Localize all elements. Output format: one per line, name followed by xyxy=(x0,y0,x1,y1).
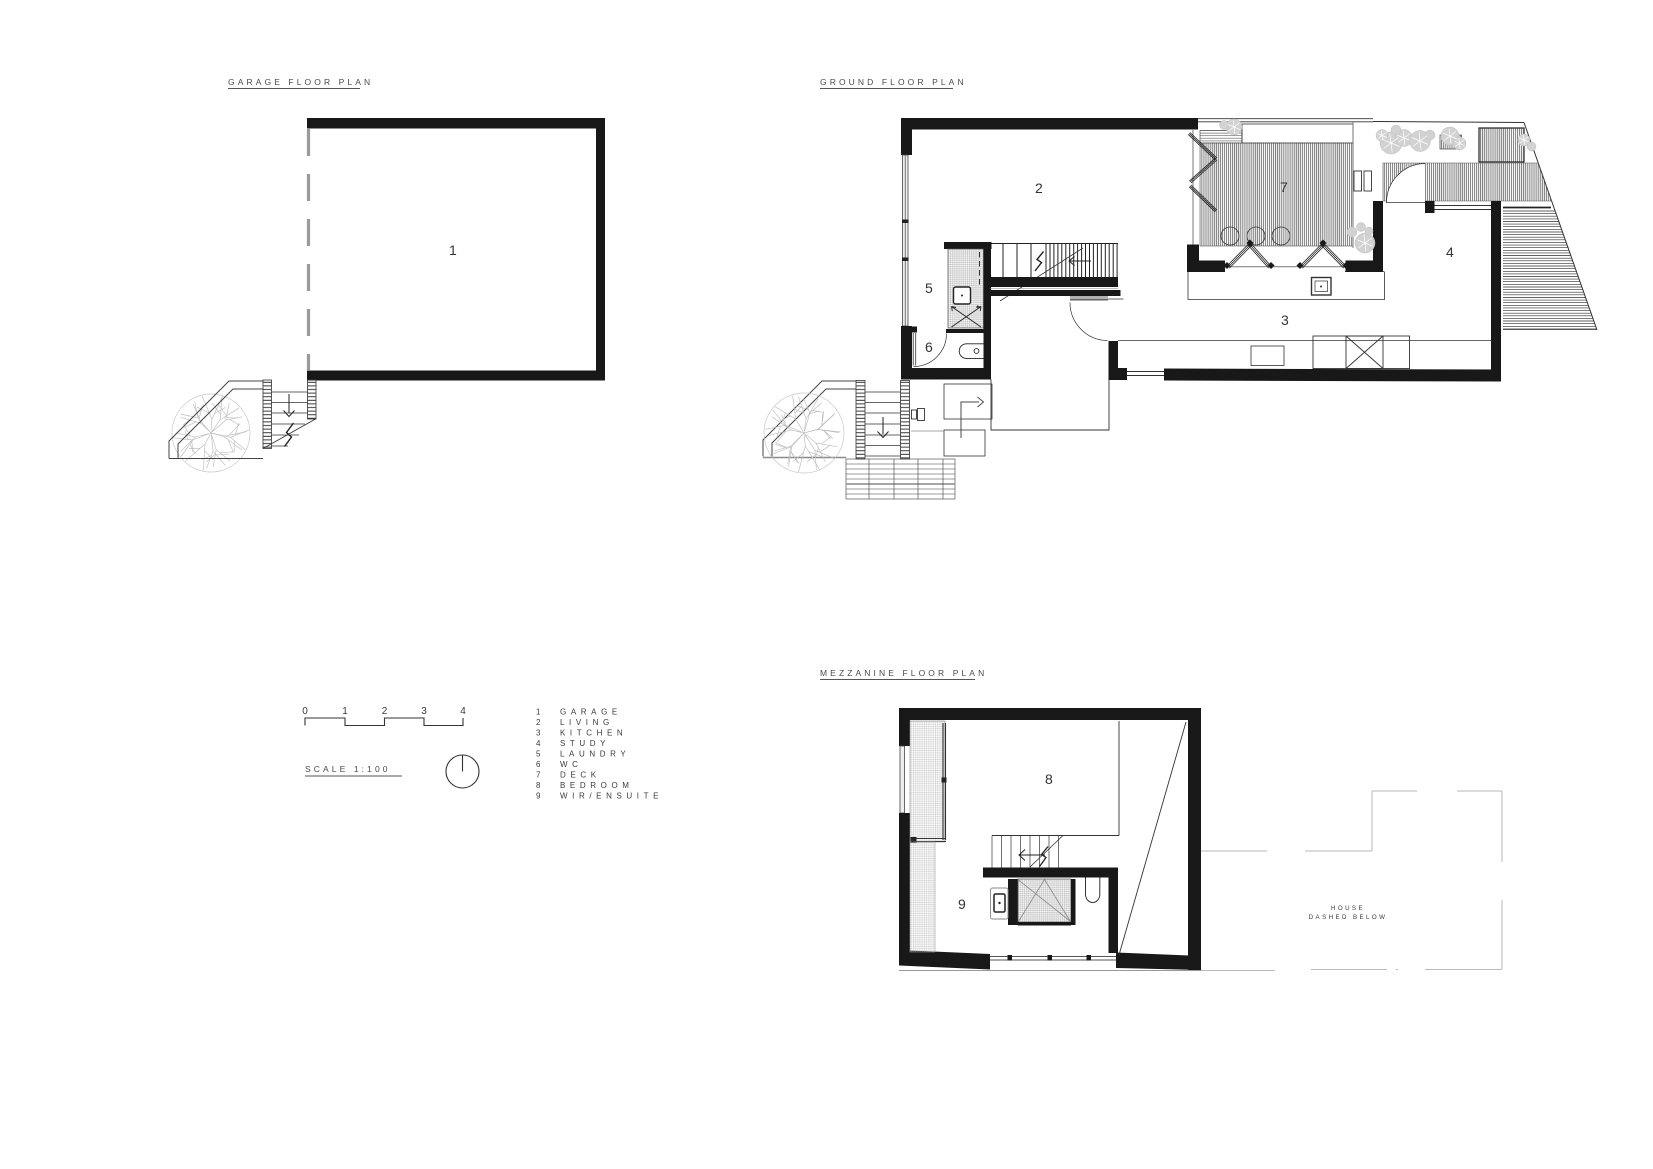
svg-text:STUDY: STUDY xyxy=(560,739,610,748)
svg-text:4: 4 xyxy=(536,739,545,748)
svg-text:8: 8 xyxy=(1045,771,1053,787)
svg-text:5: 5 xyxy=(925,280,933,296)
svg-text:2: 2 xyxy=(1035,180,1043,196)
svg-text:1: 1 xyxy=(449,242,457,258)
svg-text:WC: WC xyxy=(560,760,583,769)
svg-text:4: 4 xyxy=(460,706,466,717)
svg-text:BEDROOM: BEDROOM xyxy=(560,781,634,790)
svg-text:3: 3 xyxy=(1281,312,1289,328)
svg-text:1: 1 xyxy=(536,708,545,717)
svg-text:GARAGE FLOOR PLAN: GARAGE FLOOR PLAN xyxy=(228,77,373,87)
svg-text:5: 5 xyxy=(536,750,545,759)
svg-text:9: 9 xyxy=(536,792,545,801)
svg-text:LAUNDRY: LAUNDRY xyxy=(560,750,630,759)
svg-text:6: 6 xyxy=(536,760,545,769)
svg-text:7: 7 xyxy=(1280,179,1288,195)
svg-text:4: 4 xyxy=(1446,244,1454,260)
svg-text:GARAGE: GARAGE xyxy=(560,708,622,717)
svg-text:6: 6 xyxy=(925,339,933,355)
svg-text:SCALE 1:100: SCALE 1:100 xyxy=(305,764,391,774)
svg-text:2: 2 xyxy=(382,706,388,717)
svg-text:7: 7 xyxy=(536,771,545,780)
svg-text:LIVING: LIVING xyxy=(560,718,614,727)
svg-text:WIR/ENSUITE: WIR/ENSUITE xyxy=(560,792,663,801)
svg-text:1: 1 xyxy=(342,706,348,717)
svg-text:GROUND FLOOR PLAN: GROUND FLOOR PLAN xyxy=(820,77,967,87)
svg-text:9: 9 xyxy=(958,896,966,912)
svg-text:DASHED BELOW: DASHED BELOW xyxy=(1309,914,1388,921)
svg-text:HOUSE: HOUSE xyxy=(1331,905,1365,912)
svg-text:MEZZANINE FLOOR PLAN: MEZZANINE FLOOR PLAN xyxy=(820,668,987,678)
svg-text:2: 2 xyxy=(536,718,545,727)
svg-text:DECK: DECK xyxy=(560,771,601,780)
svg-text:3: 3 xyxy=(536,729,545,738)
svg-text:0: 0 xyxy=(302,706,308,717)
svg-text:KITCHEN: KITCHEN xyxy=(560,729,627,738)
svg-text:3: 3 xyxy=(421,706,427,717)
svg-text:8: 8 xyxy=(536,781,545,790)
